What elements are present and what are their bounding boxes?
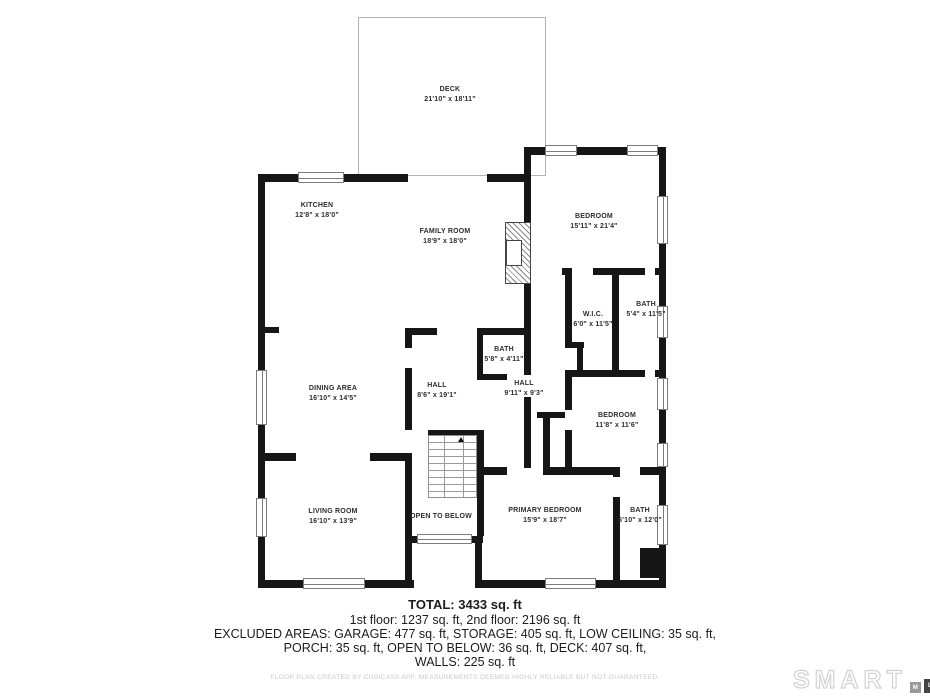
wall <box>258 453 296 461</box>
stairs-divider <box>444 436 445 497</box>
wall <box>405 461 412 588</box>
room-name: BATH <box>618 506 662 516</box>
wall <box>405 368 412 430</box>
logo-brand-text: SMART <box>793 668 907 693</box>
floor-plan: DECK 21'10" x 18'11" KITCHEN 12'8" x 18'… <box>0 0 930 697</box>
room-dims: 11'8" x 11'6" <box>596 421 639 431</box>
excluded-areas-2: PORCH: 35 sq. ft, OPEN TO BELOW: 36 sq. … <box>0 641 930 655</box>
wall <box>565 430 572 468</box>
floor-areas: 1st floor: 1237 sq. ft, 2nd floor: 2196 … <box>0 613 930 627</box>
room-name: DINING AREA <box>309 384 357 394</box>
excluded-areas-1: EXCLUDED AREAS: GARAGE: 477 sq. ft, STOR… <box>0 627 930 641</box>
room-name: BATH <box>626 300 665 310</box>
window <box>627 145 658 156</box>
window <box>657 378 668 410</box>
stairs-divider <box>463 436 464 497</box>
room-label-bath-small: BATH 5'8" x 4'11" <box>484 345 523 365</box>
room-label-primary-bedroom: PRIMARY BEDROOM 15'9" x 18'7" <box>508 506 581 526</box>
wall <box>655 268 666 275</box>
window <box>303 578 365 589</box>
fireplace-firebox <box>506 240 522 266</box>
room-label-bath-primary: BATH 5'10" x 12'0" <box>618 506 662 526</box>
area-summary: TOTAL: 3433 sq. ft 1st floor: 1237 sq. f… <box>0 597 930 669</box>
room-label-bedroom-small: BEDROOM 11'8" x 11'6" <box>596 411 639 431</box>
room-label-hall-east: HALL 9'11" x 9'3" <box>504 379 543 399</box>
wall <box>655 370 666 377</box>
wall <box>524 397 531 468</box>
room-label-family-room: FAMILY ROOM 18'9" x 18'0" <box>420 227 471 247</box>
smartmls-logo: SMART M L S <box>793 668 930 693</box>
room-label-open-to-below: OPEN TO BELOW <box>410 512 472 522</box>
room-name: BEDROOM <box>596 411 639 421</box>
wall <box>405 328 412 348</box>
room-dims: 15'11" x 21'4" <box>570 222 617 232</box>
wall <box>477 328 524 335</box>
room-name: FAMILY ROOM <box>420 227 471 237</box>
room-name: BEDROOM <box>570 212 617 222</box>
room-dims: 5'10" x 12'0" <box>618 516 662 526</box>
room-dims: 8'6" x 19'1" <box>417 391 457 401</box>
window <box>657 196 668 244</box>
room-dims: 6'0" x 11'5" <box>573 320 612 330</box>
railing <box>417 534 472 544</box>
wall <box>344 174 408 182</box>
room-label-kitchen: KITCHEN 12'8" x 18'0" <box>295 201 339 221</box>
logo-block-m: M <box>910 682 921 693</box>
wall <box>565 268 572 342</box>
room-name: KITCHEN <box>295 201 339 211</box>
wall <box>612 272 619 377</box>
wall <box>477 374 507 380</box>
room-label-wic: W.I.C. 6'0" x 11'5" <box>573 310 612 330</box>
room-name: W.I.C. <box>573 310 612 320</box>
room-label-deck: DECK 21'10" x 18'11" <box>424 85 476 105</box>
room-label-living-room: LIVING ROOM 16'10" x 13'9" <box>308 507 357 527</box>
window <box>545 145 577 156</box>
window <box>256 370 267 425</box>
wall <box>265 327 279 333</box>
window <box>545 578 596 589</box>
wall <box>477 430 484 536</box>
room-label-bedroom-large: BEDROOM 15'11" x 21'4" <box>570 212 617 232</box>
room-dims: 12'8" x 18'0" <box>295 211 339 221</box>
wall <box>477 335 483 374</box>
wall <box>370 453 412 461</box>
room-name: HALL <box>417 381 457 391</box>
room-name: PRIMARY BEDROOM <box>508 506 581 516</box>
room-dims: 5'4" x 11'5" <box>626 310 665 320</box>
room-label-bath-upper: BATH 5'4" x 11'5" <box>626 300 665 320</box>
room-label-dining-area: DINING AREA 16'10" x 14'5" <box>309 384 357 404</box>
room-dims: 16'10" x 13'9" <box>308 517 357 527</box>
room-dims: 5'8" x 4'11" <box>484 355 523 365</box>
wall <box>613 467 620 477</box>
wall <box>640 467 666 475</box>
window <box>256 498 267 537</box>
wall <box>543 467 618 475</box>
room-name: HALL <box>504 379 543 389</box>
disclaimer-text: FLOOR PLAN CREATED BY CUBICASA APP. MEAS… <box>0 674 930 681</box>
walls-area: WALLS: 225 sq. ft <box>0 655 930 669</box>
room-dims: 9'11" x 9'3" <box>504 389 543 399</box>
room-dims: 21'10" x 18'11" <box>424 95 476 105</box>
room-dims: 15'9" x 18'7" <box>508 516 581 526</box>
stairs <box>428 435 477 498</box>
wall <box>537 412 565 418</box>
room-name: DECK <box>424 85 476 95</box>
window <box>298 172 344 183</box>
room-name: BATH <box>484 345 523 355</box>
room-name: OPEN TO BELOW <box>410 512 472 522</box>
room-name: LIVING ROOM <box>308 507 357 517</box>
wall <box>483 467 507 475</box>
room-dims: 16'10" x 14'5" <box>309 394 357 404</box>
wall <box>565 377 572 410</box>
shower-block <box>640 548 666 578</box>
wall <box>593 268 645 275</box>
room-label-hall-west: HALL 8'6" x 19'1" <box>417 381 457 401</box>
stairs-direction-arrow <box>458 437 464 442</box>
logo-block-l: L <box>924 679 930 693</box>
window <box>657 443 668 467</box>
room-dims: 18'9" x 18'0" <box>420 237 471 247</box>
wall <box>565 370 645 377</box>
wall <box>412 328 437 335</box>
total-area: TOTAL: 3433 sq. ft <box>0 597 930 612</box>
